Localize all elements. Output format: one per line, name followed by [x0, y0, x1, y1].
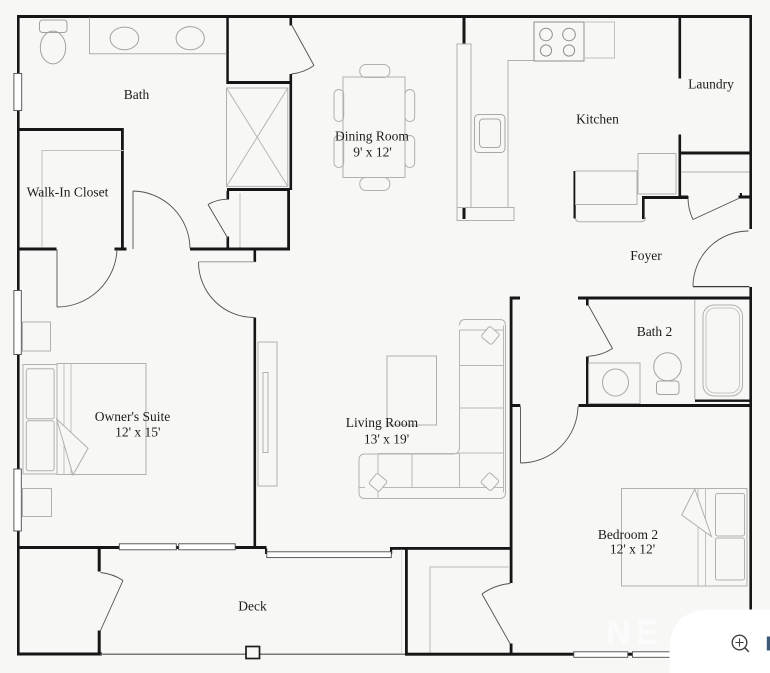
svg-text:12' x 12': 12' x 12': [610, 542, 655, 557]
svg-text:NE: NE: [606, 614, 663, 652]
svg-text:Owner's Suite: Owner's Suite: [95, 409, 171, 424]
svg-text:Deck: Deck: [238, 599, 267, 614]
svg-text:12' x 15': 12' x 15': [115, 424, 160, 439]
svg-text:Living Room: Living Room: [346, 415, 419, 430]
svg-text:Foyer: Foyer: [630, 248, 662, 263]
svg-text:Dining Room: Dining Room: [335, 129, 409, 144]
svg-text:Bath: Bath: [124, 87, 150, 102]
svg-text:Bedroom 2: Bedroom 2: [598, 527, 658, 542]
svg-text:Walk-In Closet: Walk-In Closet: [27, 185, 109, 200]
svg-text:Bath 2: Bath 2: [637, 324, 673, 339]
svg-text:Kitchen: Kitchen: [576, 112, 619, 127]
svg-text:9' x 12': 9' x 12': [353, 145, 392, 160]
svg-text:Laundry: Laundry: [688, 77, 734, 92]
svg-text:13' x 19': 13' x 19': [364, 432, 409, 447]
